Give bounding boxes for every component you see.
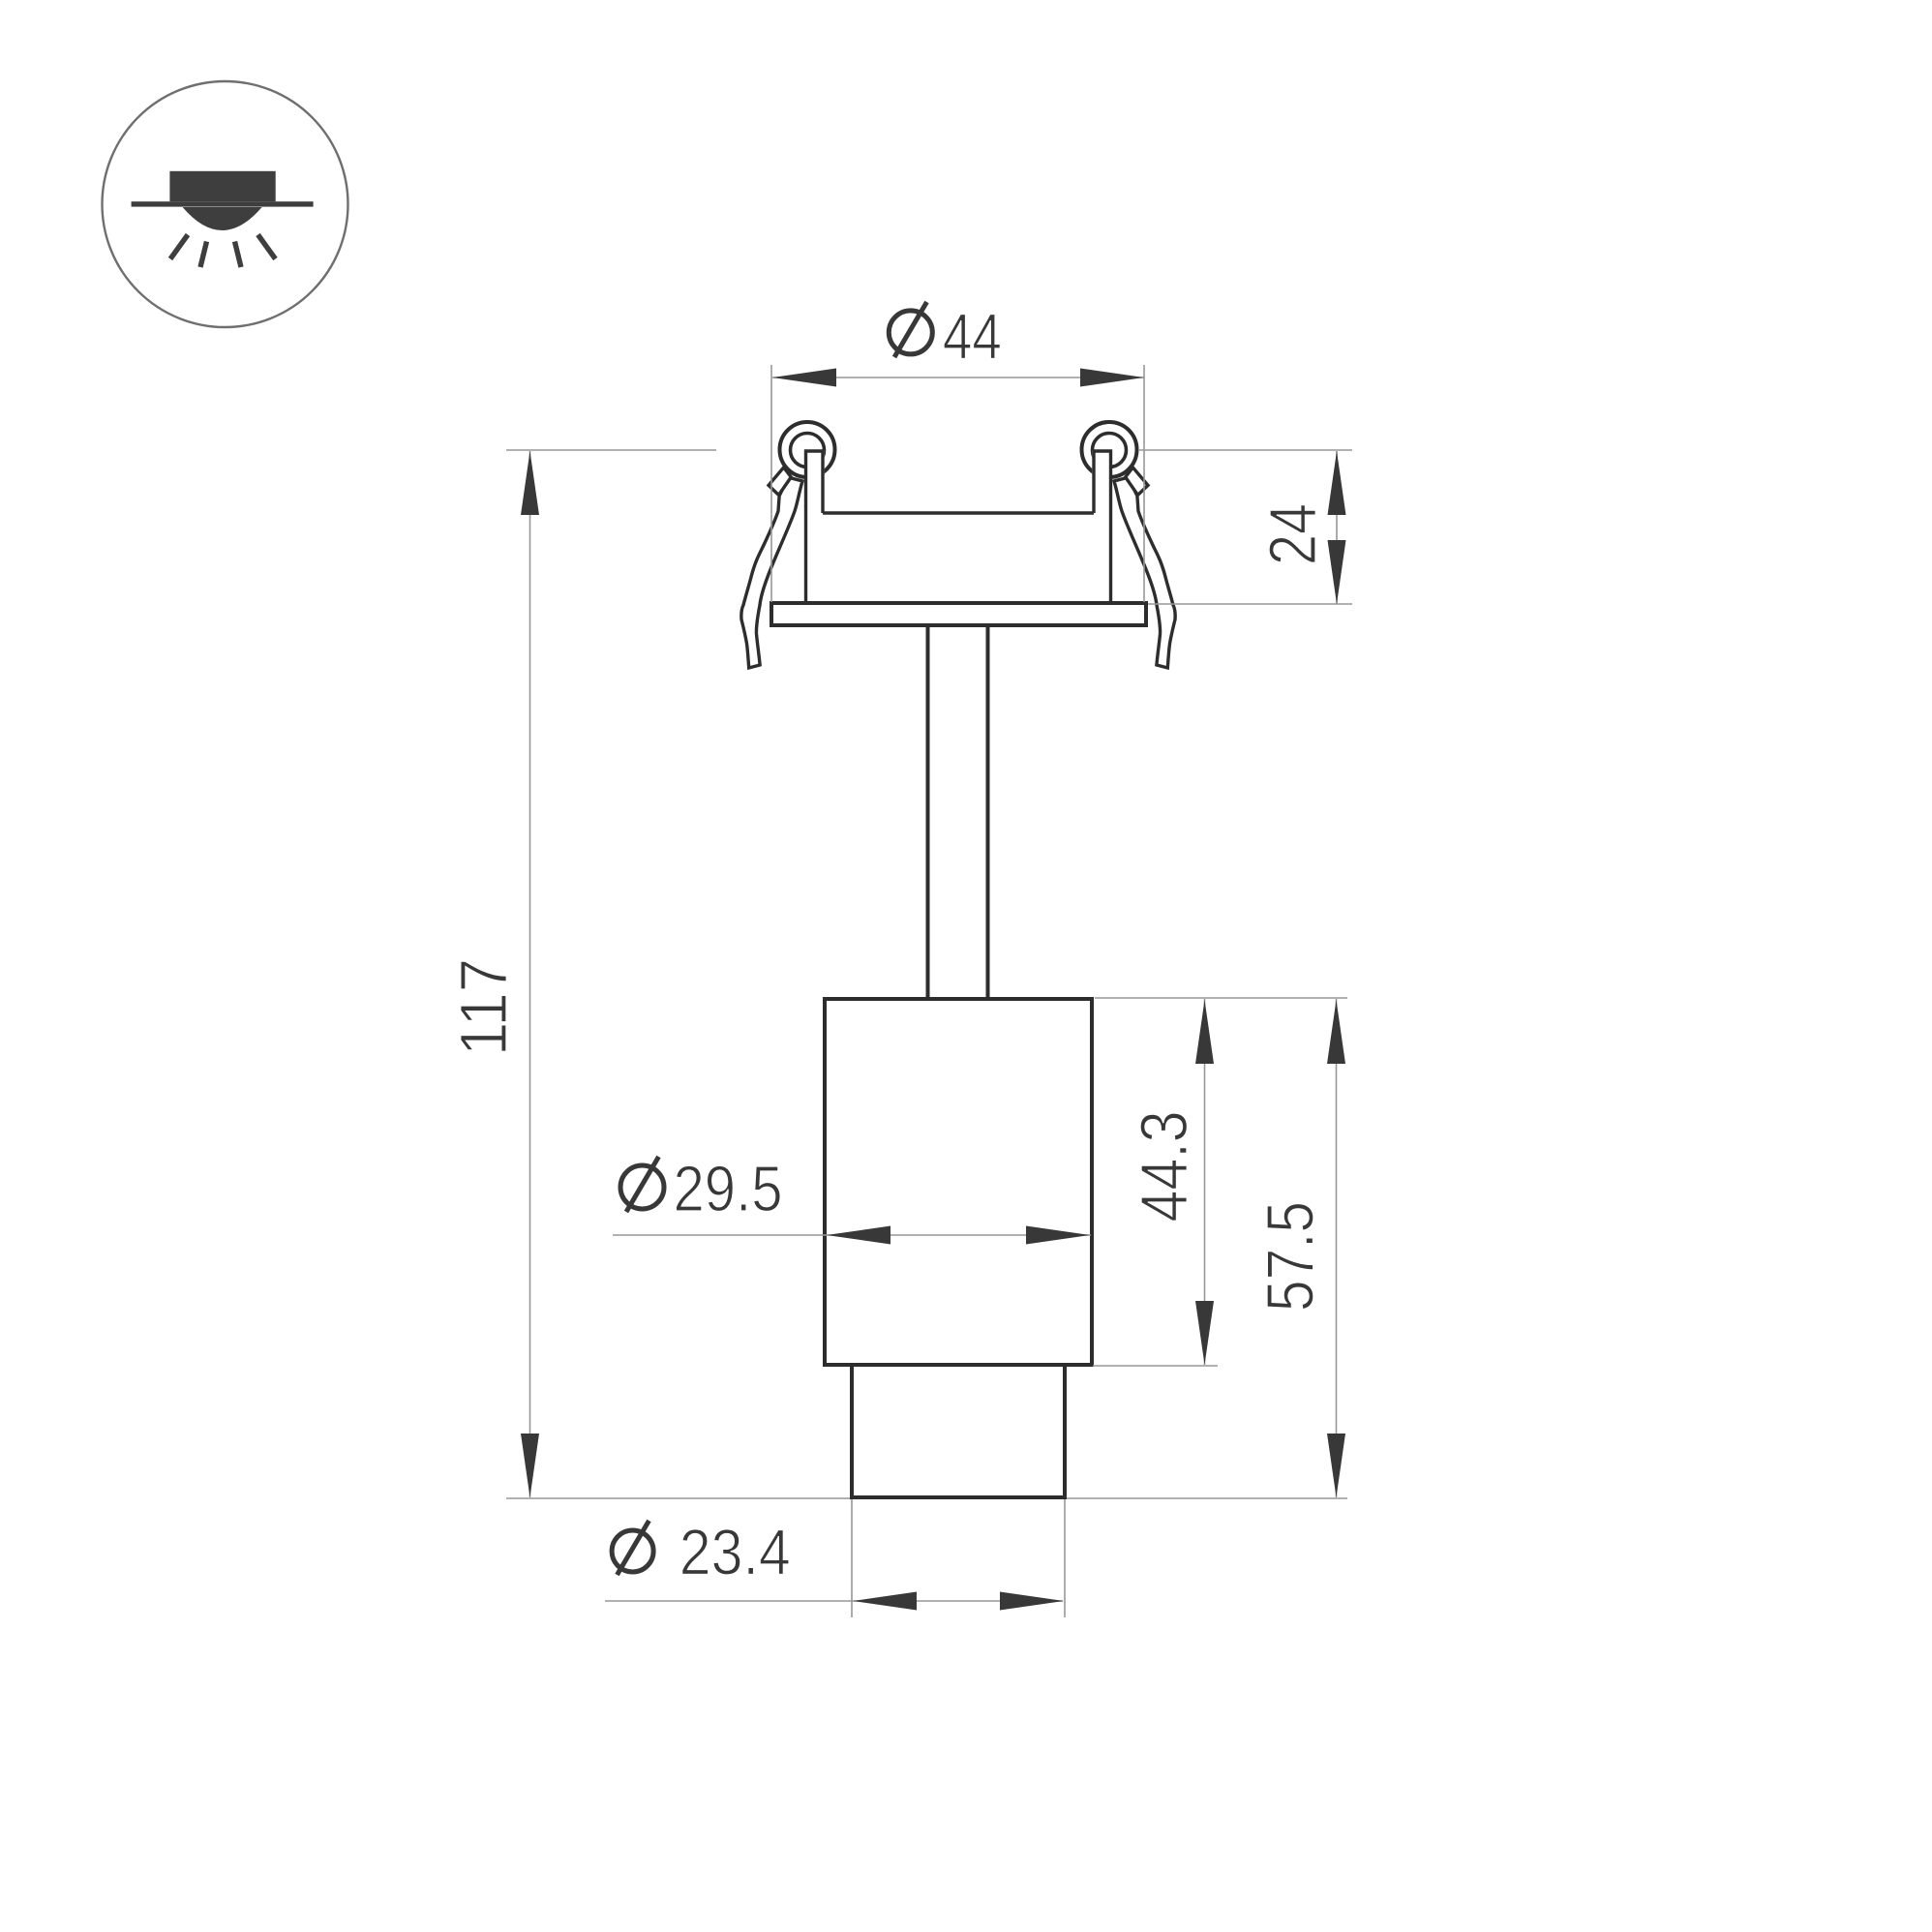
svg-text:29.5: 29.5 (674, 1153, 783, 1225)
svg-text:44.3: 44.3 (1127, 1111, 1201, 1223)
svg-text:117: 117 (446, 958, 521, 1056)
svg-text:23.4: 23.4 (679, 1517, 791, 1589)
svg-text:44: 44 (943, 301, 1002, 374)
svg-text:24: 24 (1255, 503, 1330, 565)
svg-text:57.5: 57.5 (1253, 1201, 1328, 1312)
